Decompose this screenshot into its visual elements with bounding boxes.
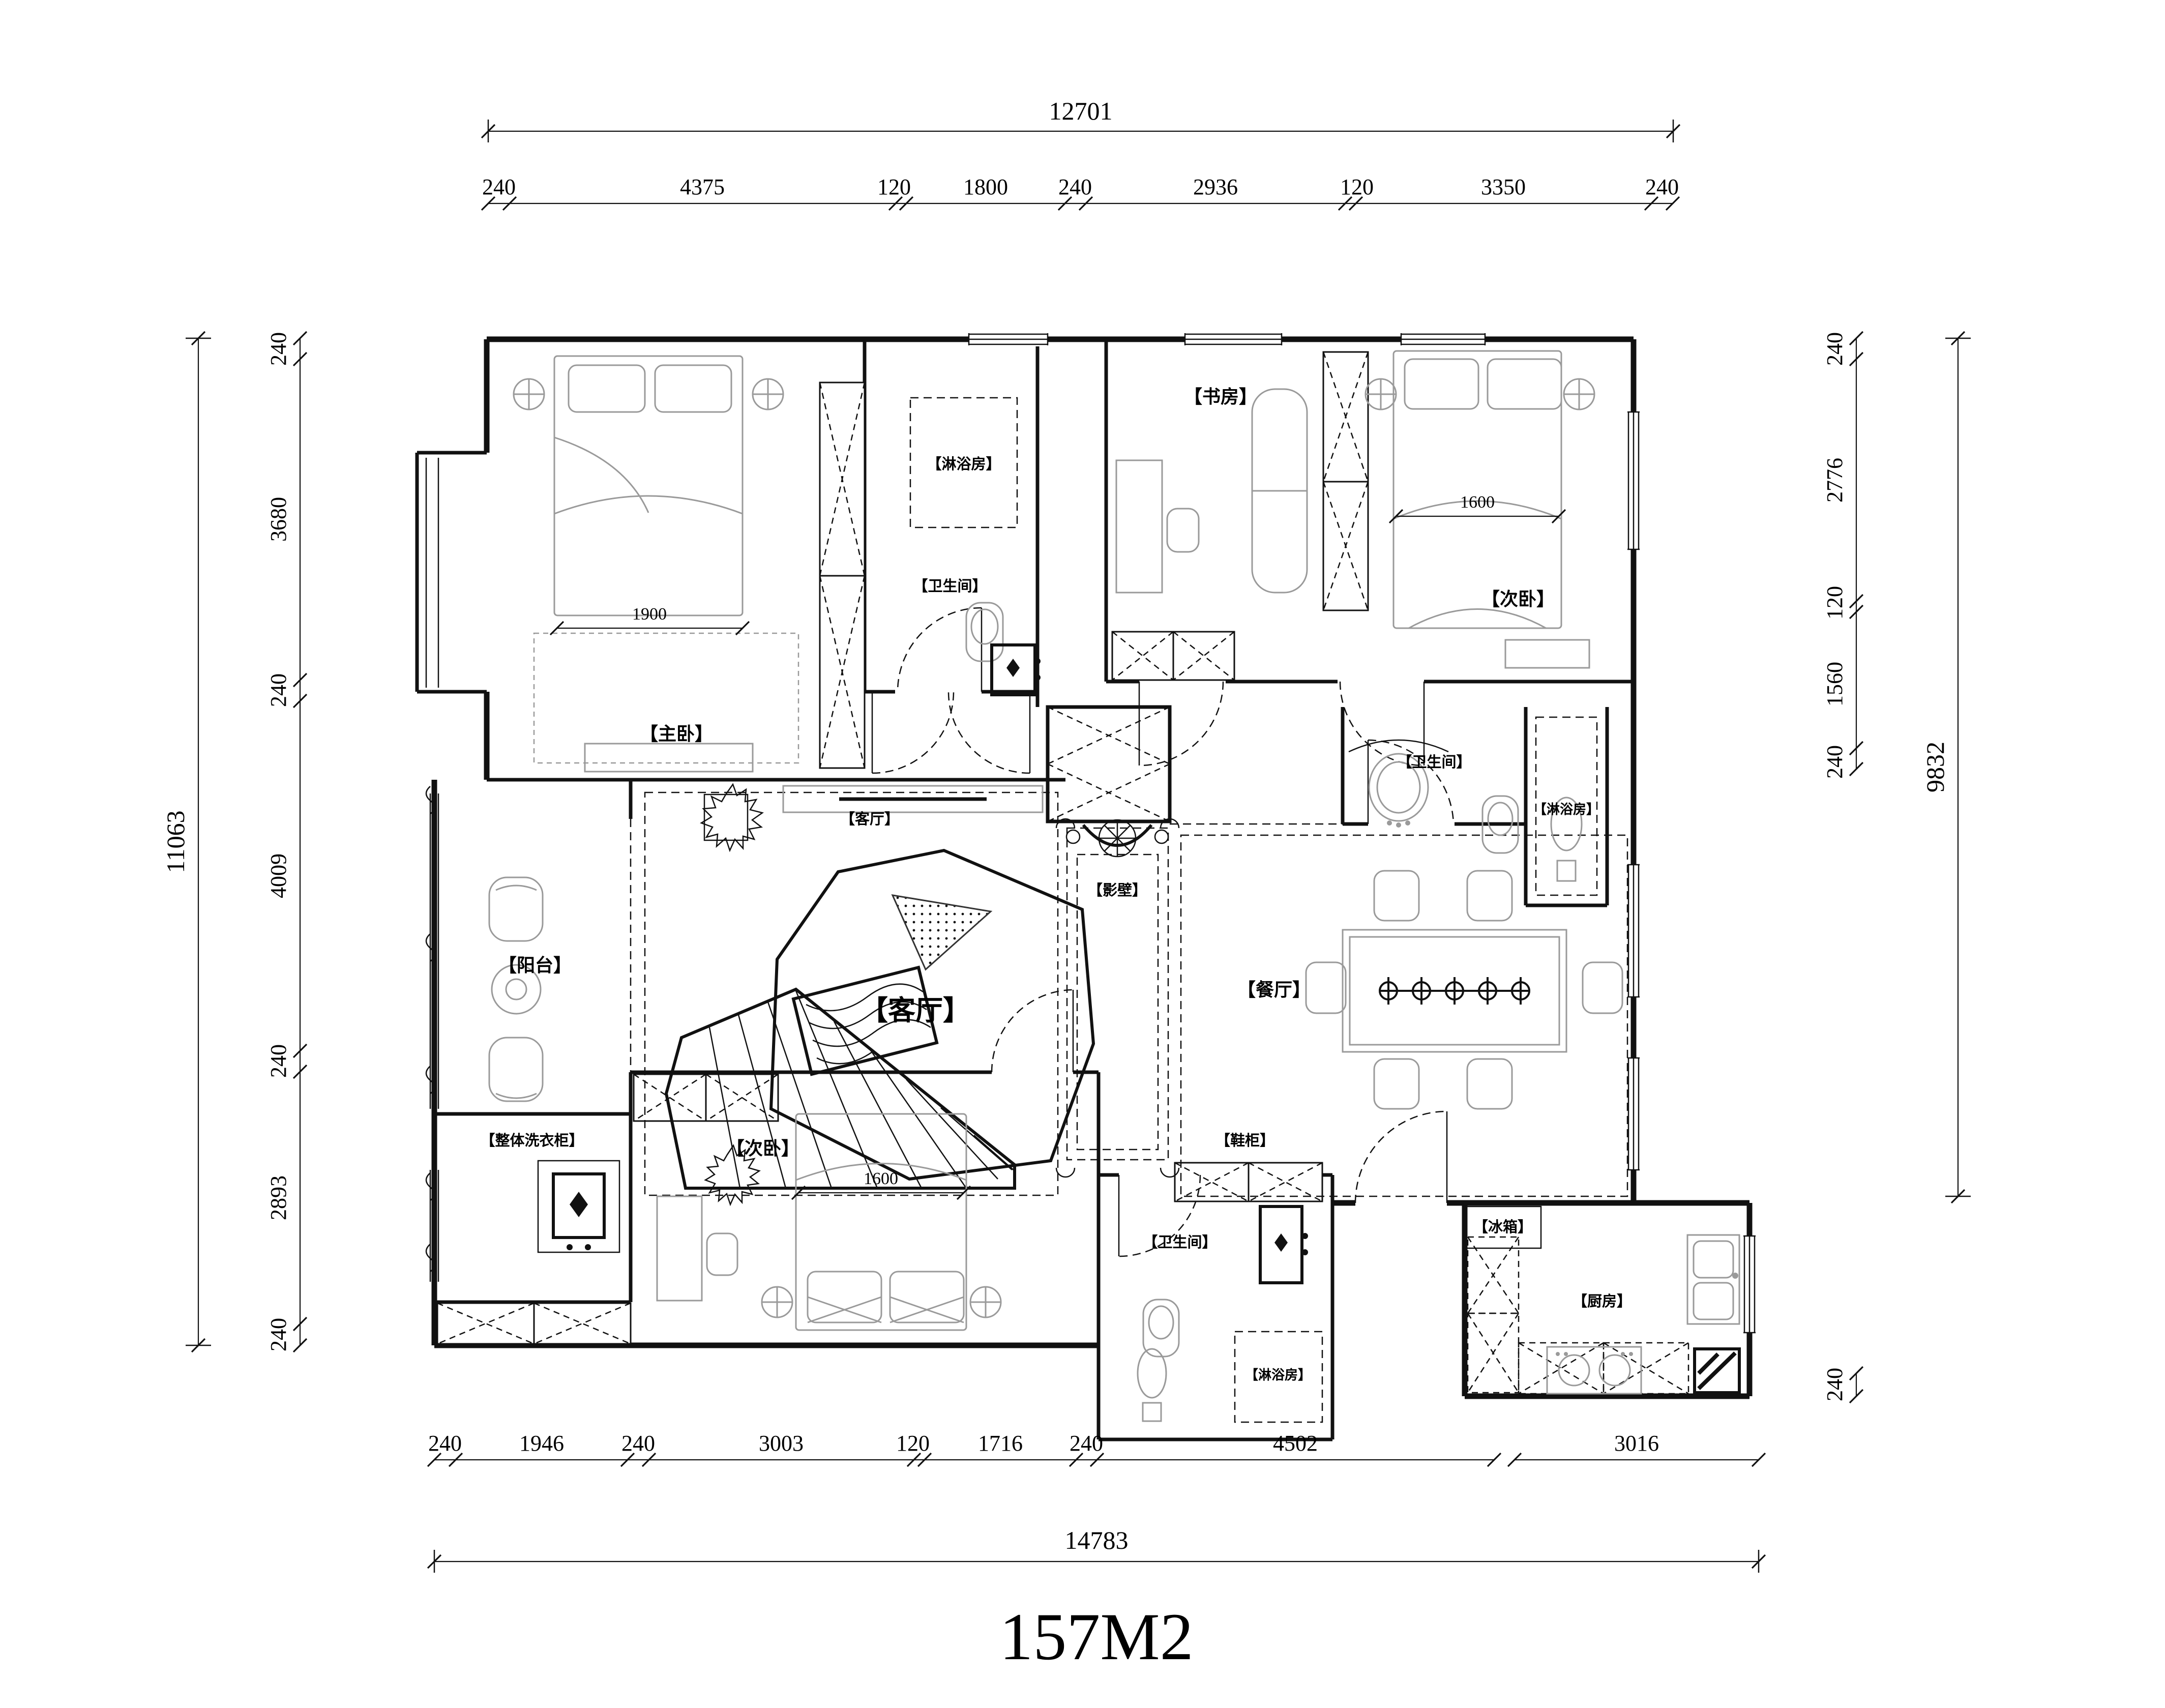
label-bedroom2-top: 【次卧】: [1481, 589, 1555, 610]
label-kitchen: 【厨房】: [1573, 1292, 1632, 1310]
label-living-small: 【客厅】: [840, 810, 899, 828]
dim-right-kitchen: 240: [1822, 1368, 1847, 1401]
dim-bottom-5: 1716: [978, 1431, 1023, 1456]
dim-top-total: 12701: [1049, 97, 1113, 125]
dim-left-4: 240: [266, 1044, 291, 1078]
dim-top-4: 240: [1058, 174, 1092, 199]
dim-top-3: 1800: [963, 174, 1008, 199]
dim-bedroom2-bed: 1600: [1389, 493, 1565, 523]
furniture-bedroom-bottom: [657, 1114, 1001, 1330]
label-balcony: 【阳台】: [498, 955, 572, 976]
room-labels: 【主卧】 【淋浴房】 【卫生间】 【书房】 【次卧】 【卫生间】 【淋浴房】 【…: [480, 387, 1632, 1383]
label-bath-top: 【卫生间】: [913, 577, 987, 595]
furniture-master-bedroom: [514, 356, 798, 772]
dim-left: 11063 240 3680 240 4009 240 2893 240: [161, 332, 307, 1352]
dim-top-7: 3350: [1481, 174, 1526, 199]
dim-bottom-3: 3003: [759, 1431, 804, 1456]
screen-wall: [1056, 819, 1179, 1177]
label-shower-top: 【淋浴房】: [927, 455, 1000, 473]
dim-left-5: 2893: [266, 1175, 291, 1220]
dim-bottom-6: 240: [1070, 1431, 1103, 1456]
dim-left-0: 240: [266, 332, 291, 366]
dim-right-2: 120: [1822, 586, 1847, 620]
label-bath-right: 【卫生间】: [1397, 753, 1471, 771]
dim-top-0: 240: [482, 174, 516, 199]
dim-top: 12701 240 4375 120 1800 240 2936 120 335…: [482, 97, 1680, 210]
dim-bottom-0: 240: [428, 1431, 462, 1456]
dim-right-3: 1560: [1822, 662, 1847, 706]
walls-inner: [417, 339, 1634, 1439]
label-fridge: 【冰箱】: [1473, 1218, 1532, 1235]
furniture-study: [1116, 389, 1307, 593]
bedroom-bottom-bed-width: 1600: [864, 1169, 898, 1188]
label-master-bedroom: 【主卧】: [640, 724, 713, 745]
dim-top-1: 4375: [680, 174, 725, 199]
label-living-big: 【客厅】: [861, 994, 970, 1026]
dim-left-6: 240: [266, 1318, 291, 1351]
dim-left-1: 3680: [266, 497, 291, 542]
dim-bottom: 240 1946 240 3003 120 1716 240 4502 3016…: [428, 1431, 1765, 1573]
dim-right-0: 240: [1822, 332, 1847, 366]
fixtures-bath-top: [910, 398, 1041, 695]
dim-bottom-1: 1946: [519, 1431, 564, 1456]
label-shoe-cabinet: 【鞋柜】: [1215, 1132, 1274, 1149]
dim-bottom-7: 4502: [1273, 1431, 1318, 1456]
master-bed-width: 1900: [632, 605, 667, 624]
dim-top-2: 120: [877, 174, 911, 199]
dim-top-5: 2936: [1193, 174, 1238, 199]
label-shower-right: 【淋浴房】: [1533, 802, 1599, 817]
label-bath-bottom: 【卫生间】: [1143, 1233, 1217, 1251]
dim-right-1: 2776: [1822, 458, 1847, 503]
label-laundry: 【整体洗衣柜】: [480, 1132, 583, 1149]
floor-plan-canvas: 1900 1600: [0, 0, 2165, 1708]
label-bedroom-bottom: 【次卧】: [726, 1138, 799, 1159]
dim-top-8: 240: [1645, 174, 1679, 199]
dim-left-3: 4009: [266, 853, 291, 898]
dim-top-6: 120: [1340, 174, 1374, 199]
dim-left-total: 11063: [161, 810, 190, 873]
dim-bottom-8: 3016: [1614, 1431, 1659, 1456]
dim-bottom-2: 240: [621, 1431, 655, 1456]
dim-left-2: 240: [266, 673, 291, 707]
dim-bottom-4: 120: [896, 1431, 930, 1456]
dim-right-4: 240: [1822, 745, 1847, 779]
furniture-balcony: [489, 877, 543, 1101]
dim-right-total: 9832: [1921, 742, 1949, 792]
fixtures-laundry: [538, 1161, 619, 1252]
dim-master-bed: 1900: [550, 605, 749, 635]
bedroom2-bed-width: 1600: [1460, 493, 1495, 512]
label-study: 【书房】: [1184, 387, 1257, 407]
label-dining: 【餐厅】: [1237, 980, 1311, 1000]
label-screen-wall: 【影壁】: [1088, 881, 1147, 899]
label-shower-bottom: 【淋浴房】: [1245, 1368, 1311, 1383]
dim-right: 240 2776 120 1560 240 240 9832: [1822, 332, 1971, 1403]
dim-bottom-total: 14783: [1065, 1526, 1129, 1554]
plan-title: 157M2: [999, 1599, 1193, 1674]
wardrobe-x-units: [437, 352, 1688, 1394]
